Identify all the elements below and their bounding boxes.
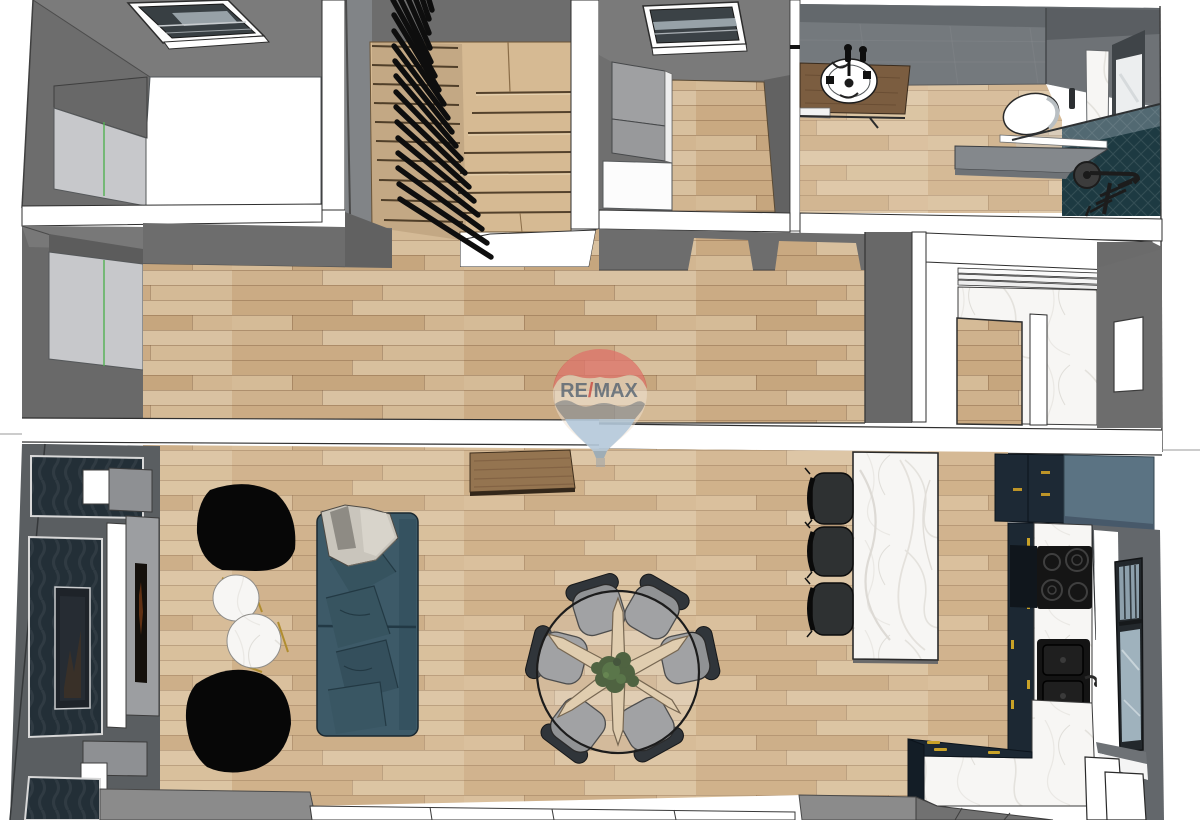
svg-text:RE/MAX: RE/MAX [560,380,638,402]
